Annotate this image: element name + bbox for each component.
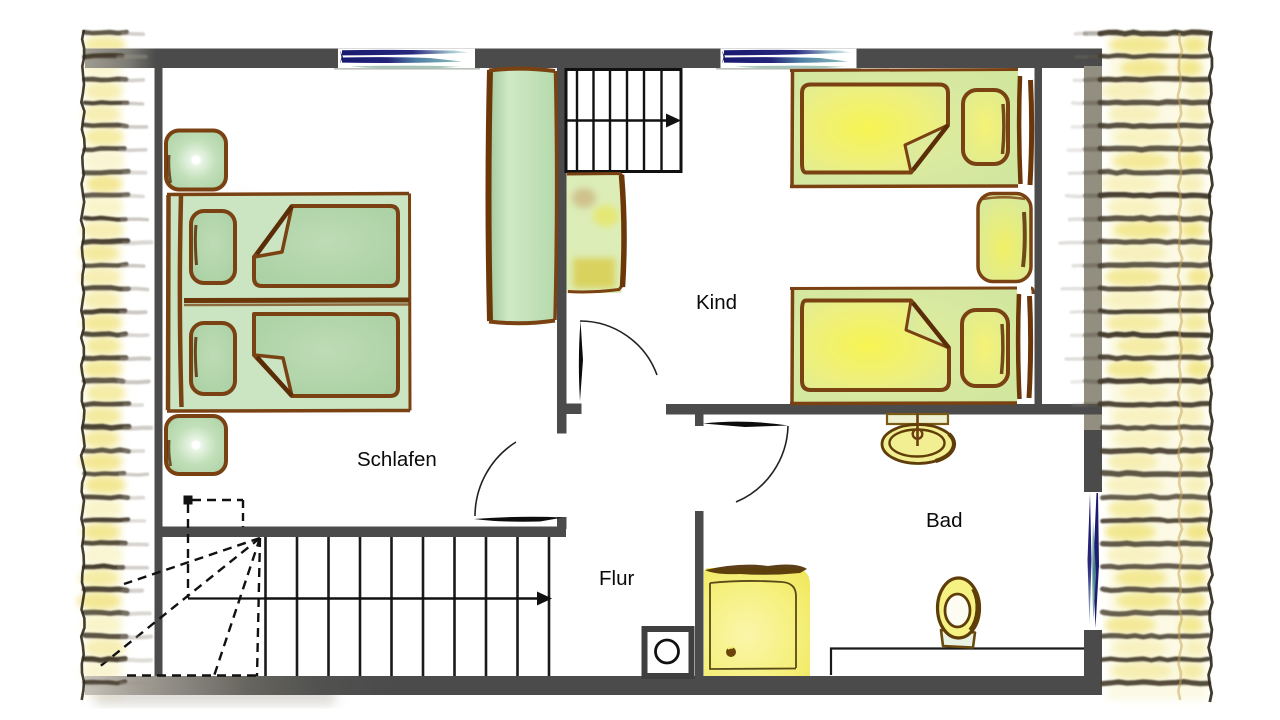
- svg-text:Bad: Bad: [926, 509, 962, 532]
- svg-text:Schlafen: Schlafen: [357, 448, 437, 471]
- svg-text:Flur: Flur: [599, 567, 634, 590]
- svg-text:Kind: Kind: [696, 291, 737, 314]
